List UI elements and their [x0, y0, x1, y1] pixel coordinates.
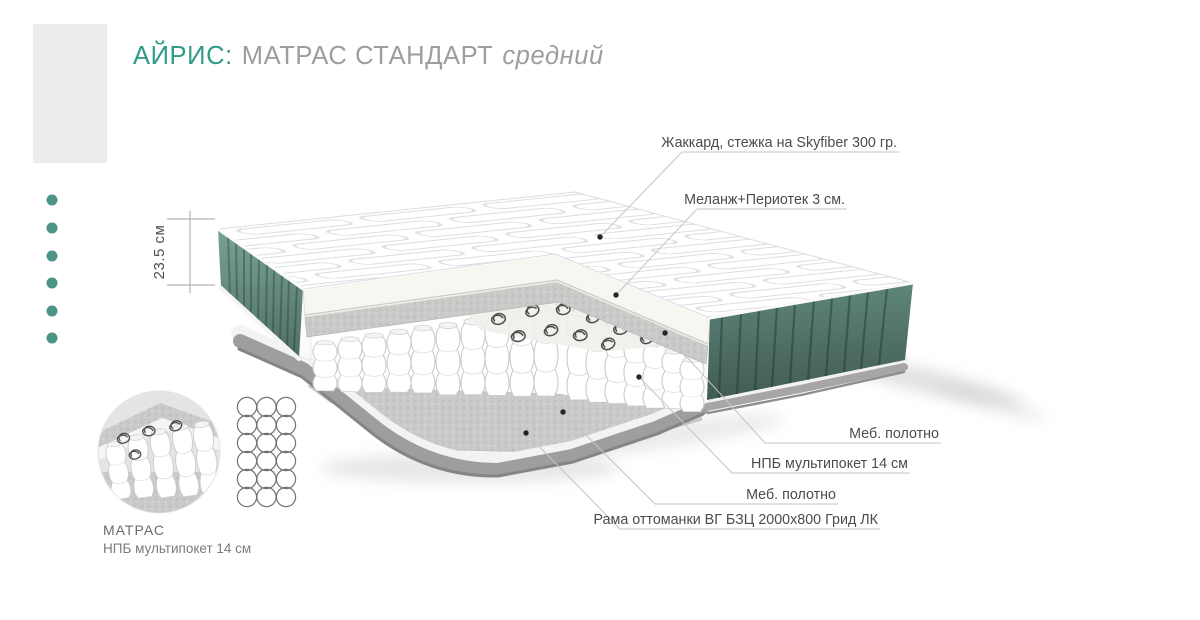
- page-title: АЙРИС:МАТРАС СТАНДАРТсредний: [133, 40, 604, 70]
- page-title-variant: средний: [502, 42, 604, 70]
- page-title-product: МАТРАС СТАНДАРТ: [242, 42, 494, 70]
- mattress-infographic-page: 23.5 см Жаккард, стежка на Skyfiber 300 …: [0, 0, 1200, 620]
- callout-frame-label: Рама оттоманки ВГ БЗЦ 2000х800 Грид ЛК: [593, 512, 878, 528]
- decorative-gray-block: [33, 24, 107, 163]
- detail-caption-title: МАТРАС: [103, 522, 165, 538]
- callout-cloth-bottom-label: Меб. полотно: [746, 487, 836, 503]
- callout-springs-label: НПБ мультипокет 14 см: [751, 456, 908, 472]
- page-title-brand: АЙРИС:: [133, 40, 233, 70]
- callout-jacquard-label: Жаккард, стежка на Skyfiber 300 гр.: [661, 135, 897, 151]
- height-dimension-label: 23.5 см: [151, 225, 168, 280]
- mattress-diagram-canvas: 23.5 см Жаккард, стежка на Skyfiber 300 …: [0, 0, 1200, 620]
- detail-caption-subtitle: НПБ мультипокет 14 см: [103, 541, 251, 556]
- callout-cloth-top-label: Меб. полотно: [849, 426, 939, 442]
- callout-melange-label: Меланж+Периотек 3 см.: [684, 192, 845, 208]
